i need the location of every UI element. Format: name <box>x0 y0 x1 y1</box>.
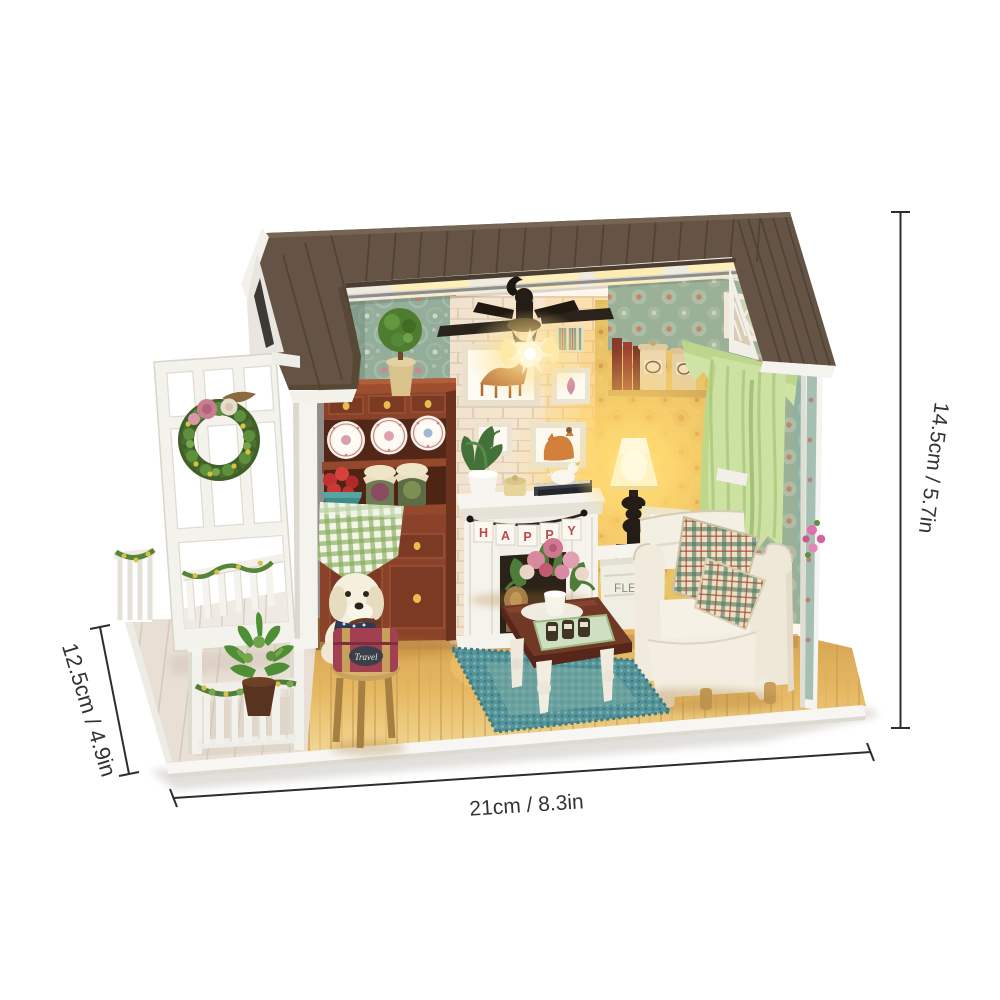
svg-text:H: H <box>479 526 488 540</box>
svg-text:Y: Y <box>567 524 576 538</box>
svg-text:P: P <box>523 530 531 544</box>
svg-text:FLE: FLE <box>614 581 636 595</box>
svg-text:Travel: Travel <box>354 652 378 662</box>
svg-text:A: A <box>501 529 510 543</box>
